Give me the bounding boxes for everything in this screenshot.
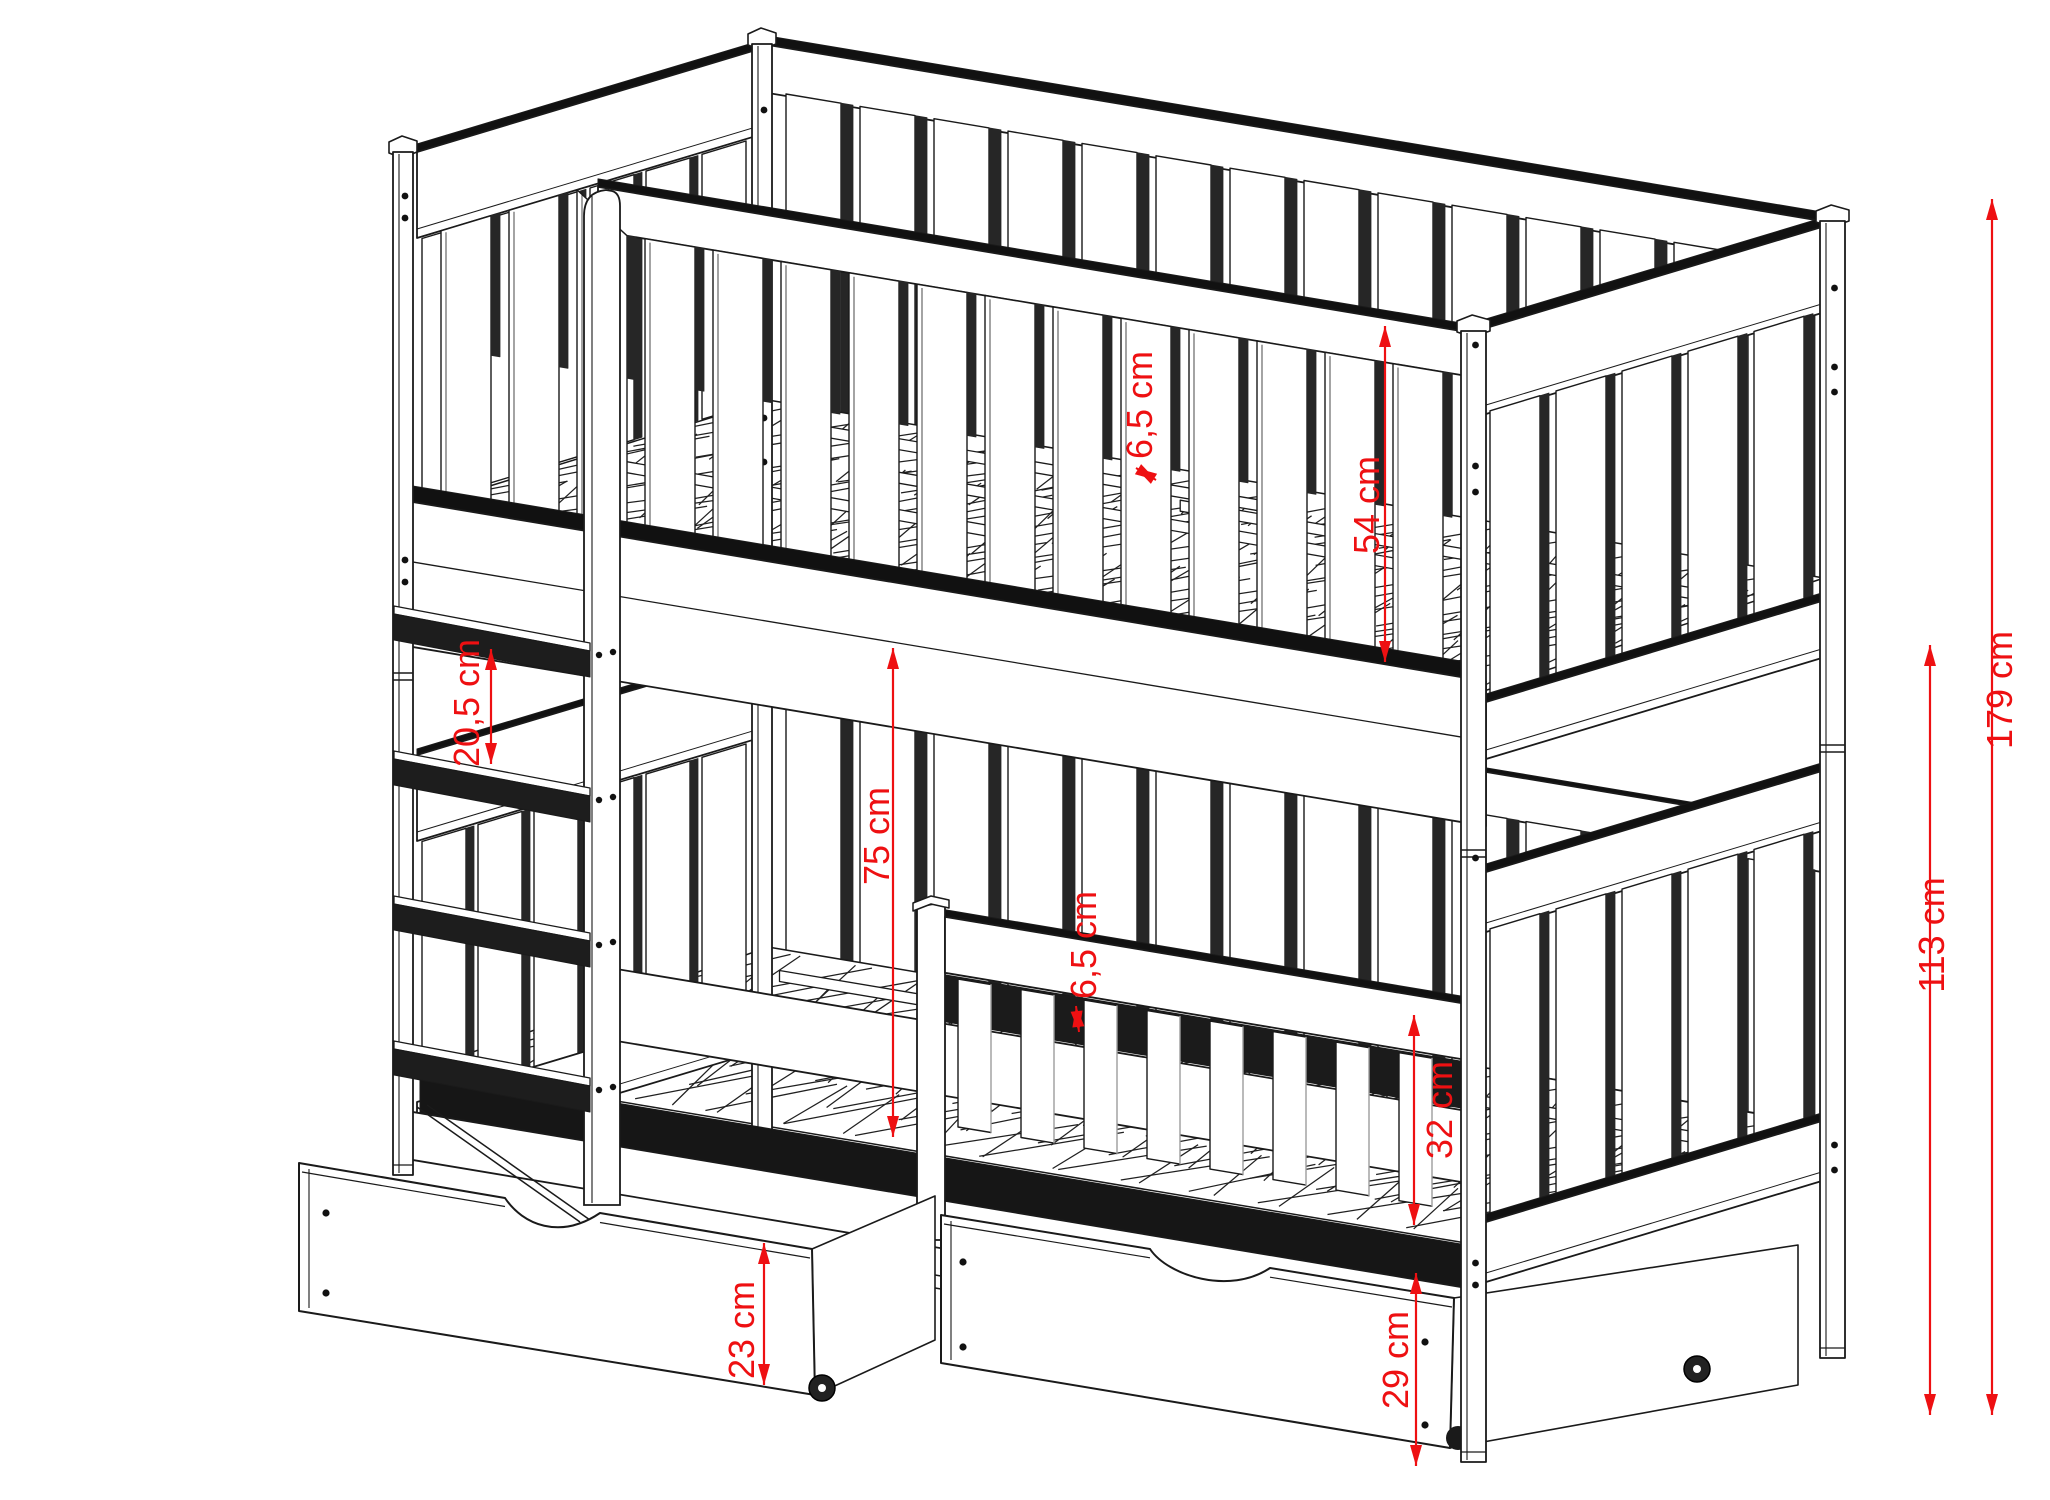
svg-text:32 cm: 32 cm: [1419, 1061, 1460, 1159]
svg-text:6,5 cm: 6,5 cm: [1119, 351, 1160, 459]
svg-text:179 cm: 179 cm: [1979, 631, 2020, 749]
svg-text:29 cm: 29 cm: [1375, 1311, 1416, 1409]
svg-text:23 cm: 23 cm: [721, 1281, 762, 1379]
svg-text:54 cm: 54 cm: [1346, 456, 1387, 554]
svg-text:75 cm: 75 cm: [856, 787, 897, 885]
svg-text:20,5 cm: 20,5 cm: [446, 639, 487, 767]
svg-text:113 cm: 113 cm: [1911, 877, 1952, 992]
svg-text:6,5 cm: 6,5 cm: [1063, 891, 1104, 999]
